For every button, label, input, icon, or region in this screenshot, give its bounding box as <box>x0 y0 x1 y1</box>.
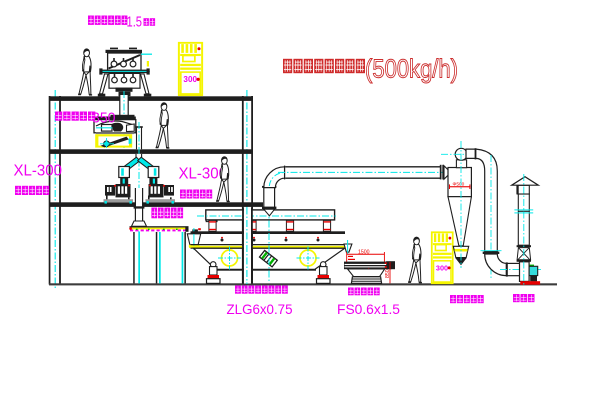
svg-text:1500: 1500 <box>358 249 370 255</box>
svg-text:Φ500: Φ500 <box>453 181 465 187</box>
svg-text:XL-300: XL-300 <box>179 166 228 183</box>
svg-text:350: 350 <box>92 110 116 127</box>
svg-text:FS0.6x1.5: FS0.6x1.5 <box>337 301 400 317</box>
svg-text:300: 300 <box>183 75 197 84</box>
svg-text:XL-300: XL-300 <box>14 163 63 180</box>
svg-text:1.5: 1.5 <box>127 15 143 31</box>
svg-text:850: 850 <box>385 269 391 278</box>
svg-text:ZLG6x0.75: ZLG6x0.75 <box>227 301 293 317</box>
svg-text:(500kg/h): (500kg/h) <box>365 54 458 84</box>
svg-text:300: 300 <box>436 263 448 272</box>
